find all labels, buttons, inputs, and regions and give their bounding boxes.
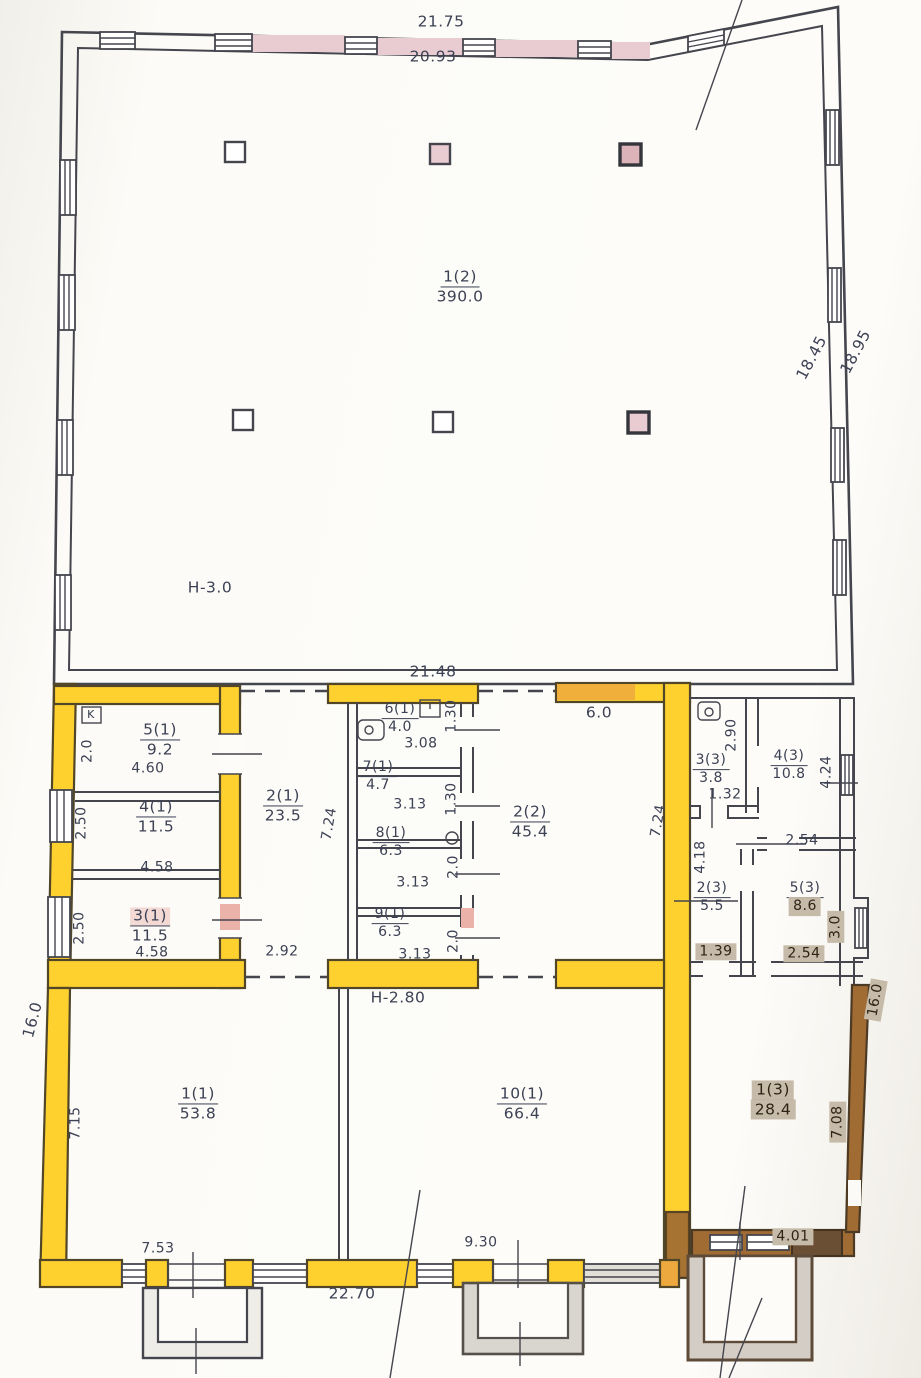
dim-r4-h: 2.50: [74, 806, 89, 839]
height-label-annex: H-2.80: [371, 989, 426, 1006]
dim-r101-w: 9.30: [464, 1235, 497, 1250]
boiler-marker: K: [87, 709, 95, 721]
room-number: 10(1): [497, 1085, 547, 1104]
room-number: 1(1): [178, 1085, 218, 1104]
floor-plan-drawing: [0, 0, 921, 1378]
dim-bottom-w: 22.70: [329, 1285, 376, 1302]
room-area: 23.5: [265, 807, 302, 825]
dim-r3-w: 4.58: [135, 945, 168, 960]
room-number: 2(1): [263, 787, 303, 806]
room-area: 4.0: [388, 720, 412, 736]
room-area: 6.3: [379, 844, 403, 860]
dim-mid-top: 21.48: [410, 663, 457, 680]
floor-plan-page: 1(2) 390.0 H-3.0 21.75 20.93 18.45 18.95…: [0, 0, 921, 1378]
room-area: 4.7: [366, 778, 390, 794]
room-area: 53.8: [180, 1105, 217, 1123]
dim-top-inner: 20.93: [410, 48, 457, 65]
dim-r9-w: 3.13: [398, 947, 431, 962]
room-area: 9.2: [147, 741, 173, 759]
room-area: 390.0: [437, 288, 484, 306]
dim-corridor-w: 2.92: [265, 944, 298, 959]
dim-r7-w: 3.13: [393, 797, 426, 812]
room-area: 8.6: [790, 899, 820, 915]
room-number: 5(3): [787, 881, 824, 898]
room-area: 11.5: [138, 818, 175, 836]
dim-r6-w: 3.08: [404, 736, 437, 751]
sink-icon: [358, 720, 384, 740]
room-number: 6(1): [382, 702, 419, 719]
dim-r43-w: 2.54: [785, 833, 818, 848]
room-number: 3(3): [693, 753, 730, 770]
dim-r7-h: 1.30: [444, 782, 459, 815]
dim-r13-h: 7.08: [830, 1102, 845, 1141]
dim-r53-h: 3.0: [828, 912, 843, 942]
height-label-hall: H-3.0: [188, 579, 232, 596]
dim-mid-right-h: 4.18: [693, 840, 708, 873]
room-area: 45.4: [512, 823, 549, 841]
basin-icon: [446, 832, 458, 844]
room-label-3-3: 3(3) 3.8: [693, 753, 730, 787]
dim-r5-w: 4.60: [131, 761, 164, 776]
dim-r8-h: 2.0: [446, 855, 461, 879]
room-area: 5.5: [700, 899, 724, 915]
room-label-4-1: 4(1) 11.5: [136, 798, 176, 835]
dim-r8-w: 3.13: [396, 875, 429, 890]
room-number: 8(1): [373, 826, 410, 843]
room-area: 11.5: [132, 927, 169, 945]
dim-r33-w: 1.32: [708, 787, 741, 802]
room-label-hall: 1(2) 390.0: [437, 268, 484, 305]
room-label-5-1: 5(1) 9.2: [140, 721, 180, 758]
dim-r33-h: 2.90: [724, 718, 739, 751]
dim-r43-h: 4.24: [819, 755, 834, 788]
room-area: 3.8: [699, 771, 723, 787]
room-area: 6.3: [378, 925, 402, 941]
dim-r13-w: 4.01: [773, 1229, 812, 1244]
room-area: 28.4: [752, 1101, 795, 1119]
room-label-10-1: 10(1) 66.4: [497, 1085, 547, 1122]
room-label-1-3: 1(3) 28.4: [752, 1081, 795, 1118]
dim-r5-h: 2.0: [80, 739, 95, 763]
room-area: 66.4: [504, 1105, 541, 1123]
room-number: 3(1): [130, 907, 170, 926]
room-number: 1(2): [440, 268, 480, 287]
side-wall-windows: [55, 110, 846, 630]
dim-r22-top: 6.0: [586, 704, 612, 721]
room-number: 5(1): [140, 721, 180, 740]
room-number: 1(3): [753, 1081, 793, 1100]
dim-r3-h: 2.50: [72, 911, 87, 944]
room-label-4-3: 4(3) 10.8: [771, 749, 808, 783]
room-label-8-1: 8(1) 6.3: [373, 826, 410, 860]
toilet-icon-2: [698, 702, 720, 720]
room-area: 10.8: [772, 767, 805, 783]
room-number: 2(3): [694, 881, 731, 898]
room-number: 9(1): [372, 907, 409, 924]
room-label-3-1: 3(1) 11.5: [130, 907, 170, 944]
room-label-2-1: 2(1) 23.5: [263, 787, 303, 824]
room-label-2-2: 2(2) 45.4: [510, 803, 550, 840]
room-label-7-1: 7(1) 4.7: [360, 760, 397, 794]
dim-r9-h: 2.0: [446, 929, 461, 953]
room-number: 4(3): [771, 749, 808, 766]
room-number: 2(2): [510, 803, 550, 822]
hall-outline: [54, 7, 853, 684]
room-label-5-3: 5(3) 8.6: [787, 881, 824, 915]
dim-r11-w: 7.53: [141, 1241, 174, 1256]
dim-r23-w: 1.39: [696, 944, 735, 959]
room-label-1-1: 1(1) 53.8: [178, 1085, 218, 1122]
room-label-6-1: 6(1) 4.0: [382, 702, 419, 736]
dim-r4-w: 4.58: [140, 860, 173, 875]
room-label-2-3: 2(3) 5.5: [694, 881, 731, 915]
dim-r53-w: 2.54: [784, 946, 823, 961]
room-label-9-1: 9(1) 6.3: [372, 907, 409, 941]
room-number: 4(1): [136, 798, 176, 817]
room-number: 7(1): [360, 760, 397, 777]
dim-r11-h: 7.15: [68, 1106, 83, 1139]
dim-r6-h: 1.30: [444, 699, 459, 732]
dim-top-outer: 21.75: [418, 13, 465, 30]
